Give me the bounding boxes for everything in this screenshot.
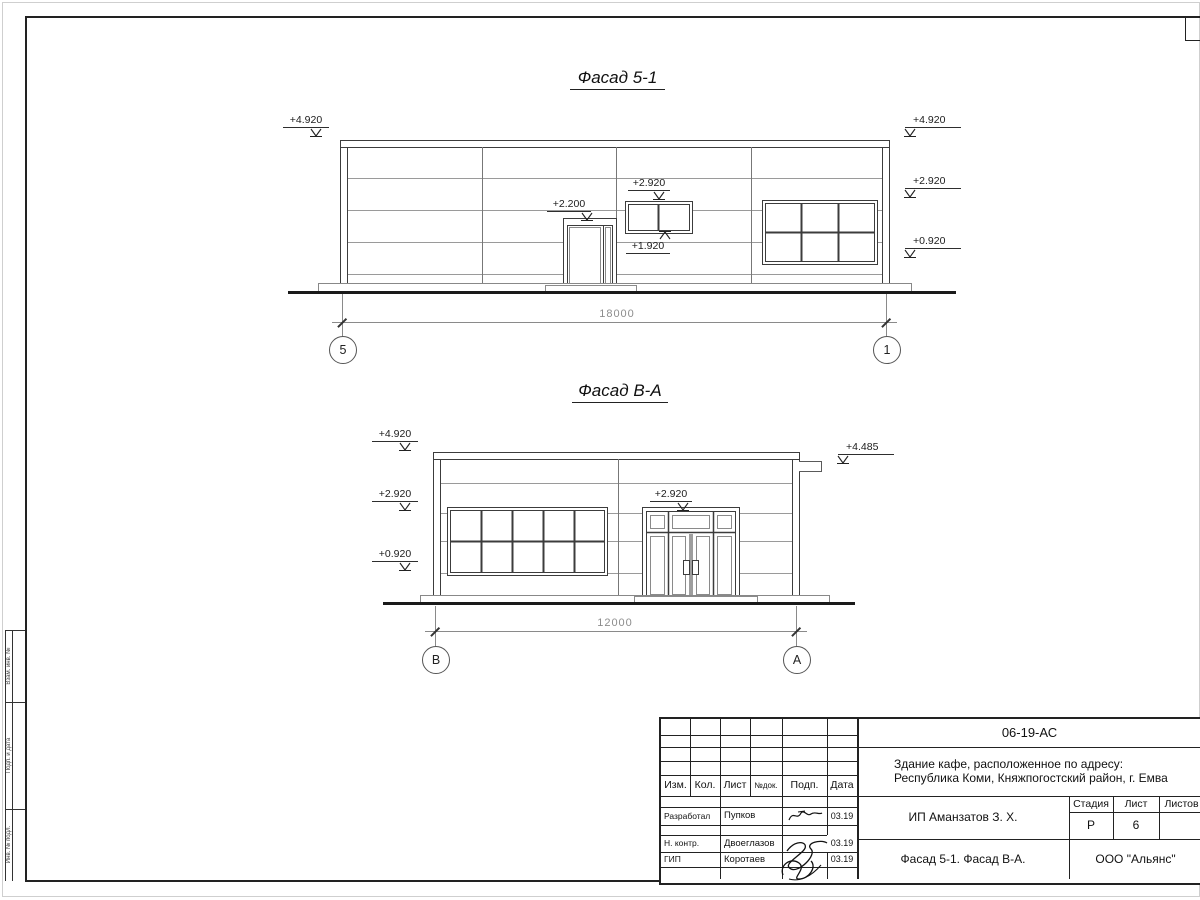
elevation-mark-arrow [903, 189, 917, 199]
elevation-mark-text: +2.920 [372, 488, 418, 502]
tb-col-podp: Подп. [782, 775, 827, 796]
elevation-mark-text: +2.920 [628, 177, 670, 191]
panel-division [618, 459, 619, 602]
tb-stage-value: Р [1069, 812, 1113, 839]
drawing-sheet: Взам. инв. № Подп. и дата Инв. № подл. Ф… [0, 0, 1200, 900]
tb-signer-role: Н. контр. [664, 835, 719, 852]
extension-line [342, 294, 343, 338]
tb-signer-date: 03.19 [827, 807, 857, 825]
elevation-mark-text: +4.920 [905, 114, 961, 128]
elevation-mark-arrow [580, 212, 594, 222]
elevation-mark-arrow [836, 455, 850, 465]
dimension-value: 12000 [580, 617, 650, 629]
parapet-line [341, 147, 889, 148]
tb-sheets-value [1159, 812, 1200, 839]
tb-client: ИП Аманзатов З. Х. [857, 796, 1069, 839]
signature-dvoeglazov-korotaev [777, 835, 833, 881]
facade1-door [563, 218, 617, 292]
corner-box-left [1185, 17, 1186, 41]
axis-bubble-b: В [422, 646, 450, 674]
corner-line [792, 459, 793, 602]
facade1-title: Фасад 5-1 [570, 68, 665, 90]
elevation-mark-arrow [903, 128, 917, 138]
tb-project-address-line2: Республика Коми, Княжпогостский район, г… [894, 771, 1199, 785]
tb-sheets-label: Листов [1159, 796, 1200, 812]
tb-signer-name: Коротаев [724, 852, 781, 867]
elevation-mark-arrow [309, 128, 323, 138]
elevation-mark-text: +0.920 [372, 548, 418, 562]
tb-signer-name: Пупков [724, 807, 781, 825]
extension-line [435, 606, 436, 647]
corner-box-bottom [1185, 40, 1200, 41]
tb-signer-name: Двоеглазов [724, 835, 781, 852]
dimension-line [332, 322, 897, 323]
tb-col-ndok: №док. [750, 775, 782, 796]
extension-line [886, 294, 887, 338]
facade2-ground-line [383, 602, 855, 605]
facade2-entrance-door [642, 507, 741, 603]
extension-line [796, 606, 797, 647]
tb-col-kol: Кол. [690, 775, 720, 796]
corner-line [347, 147, 348, 291]
panel-division [482, 147, 483, 291]
elevation-mark-text: +1.920 [626, 240, 670, 254]
margin-stamp-inv: Инв. № подл. [5, 809, 13, 880]
corner-line [882, 147, 883, 291]
tb-sheet-name: Фасад 5-1. Фасад В-А. [857, 839, 1069, 879]
elevation-mark-text: +2.920 [650, 488, 692, 502]
frame-top [25, 16, 1200, 18]
elevation-mark-text: +4.485 [838, 441, 894, 455]
dimension-line [425, 631, 807, 632]
elevation-mark-arrow [676, 502, 690, 512]
tb-col-izm: Изм. [661, 775, 690, 796]
axis-bubble-a: А [783, 646, 811, 674]
frame-left [25, 16, 27, 882]
elevation-mark-text: +2.200 [547, 198, 591, 212]
tb-sheet-value: 6 [1113, 812, 1159, 839]
elevation-mark-arrow [652, 191, 666, 201]
siding-line [348, 178, 882, 179]
elevation-mark-arrow [398, 502, 412, 512]
facade1-big-window [762, 200, 878, 265]
tb-project-address-line1: Здание кафе, расположенное по адресу: [894, 757, 1199, 771]
tb-stage-label: Стадия [1069, 796, 1113, 812]
axis-bubble-1: 1 [873, 336, 901, 364]
elevation-mark-text: +2.920 [905, 175, 961, 189]
signature-pupkov [785, 808, 825, 824]
tb-signer-role: ГИП [664, 852, 719, 867]
margin-stamp-vzam: Взам. инв. № [5, 630, 13, 702]
corner-line [440, 459, 441, 602]
elevation-mark-arrow [398, 562, 412, 572]
axis-bubble-5: 5 [329, 336, 357, 364]
tb-col-list: Лист [720, 775, 750, 796]
panel-division [751, 147, 752, 291]
siding-line [441, 483, 792, 484]
elevation-mark-text: +4.920 [372, 428, 418, 442]
elevation-mark-arrow [398, 442, 412, 452]
margin-stamp-podp: Подп. и дата [5, 702, 13, 809]
facade2-title: Фасад В-А [572, 381, 668, 403]
dimension-value: 18000 [582, 308, 652, 320]
tb-doc-code: 06-19-АС [857, 719, 1200, 747]
facade2-big-window [447, 507, 608, 576]
tb-organization: ООО "Альянс" [1069, 839, 1200, 879]
tb-signer-role: Разработал [664, 807, 719, 825]
facade2-canopy [799, 461, 822, 472]
tb-sheet-label: Лист [1113, 796, 1159, 812]
elevation-mark-arrow [658, 230, 672, 240]
elevation-mark-arrow [903, 249, 917, 259]
parapet-line [434, 459, 799, 460]
tb-line [720, 719, 721, 879]
facade1-ground-line [288, 291, 956, 294]
elevation-mark-text: +0.920 [905, 235, 961, 249]
elevation-mark-text: +4.920 [283, 114, 329, 128]
title-block: Изм. Кол. Лист №док. Подп. Дата Разработ… [659, 717, 1200, 885]
tb-line [661, 747, 1200, 748]
tb-col-data: Дата [827, 775, 857, 796]
